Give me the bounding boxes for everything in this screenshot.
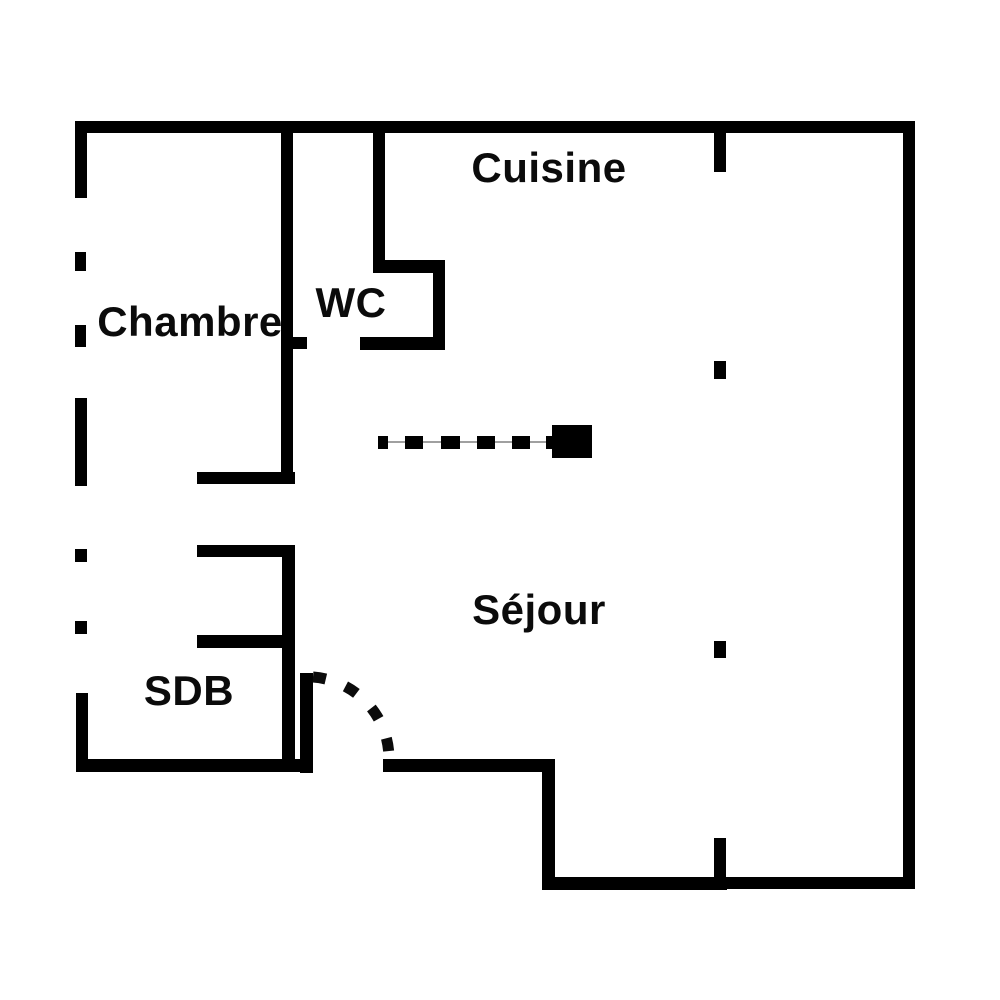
wall-step-horizontal bbox=[383, 759, 555, 772]
wall-wc-right-upper bbox=[373, 130, 385, 273]
wall-chambre-divider bbox=[281, 130, 293, 473]
room-label-cuisine: Cuisine bbox=[471, 144, 626, 191]
room-label-chambre: Chambre bbox=[97, 298, 283, 345]
indicator-block bbox=[552, 425, 592, 458]
wall-right bbox=[903, 121, 915, 889]
floor-plan: Cuisine Chambre WC Séjour SDB bbox=[0, 0, 1000, 1000]
room-label-sejour: Séjour bbox=[472, 586, 606, 633]
opening-dash bbox=[714, 641, 726, 658]
wall-step-vertical bbox=[542, 760, 555, 890]
floor-plan-drawing: Cuisine Chambre WC Séjour SDB bbox=[0, 0, 1000, 1000]
door-swing-arc bbox=[313, 677, 389, 759]
window-dash bbox=[75, 252, 86, 271]
wall-chambre-bottom bbox=[197, 472, 295, 484]
wall-bottom-right bbox=[720, 877, 915, 889]
indicator-dash bbox=[378, 436, 388, 449]
entrance-indicator bbox=[378, 425, 592, 458]
indicator-dash bbox=[477, 436, 495, 449]
wall-sdb-top bbox=[197, 545, 293, 557]
wall-top bbox=[75, 121, 913, 133]
indicator-dash bbox=[512, 436, 530, 449]
wall-sdb-middle bbox=[197, 635, 283, 648]
wall-stub-bottom bbox=[714, 838, 726, 889]
opening-dash bbox=[714, 361, 726, 379]
wall-wc-door-jamb bbox=[293, 337, 307, 349]
wall-sdb-right bbox=[282, 545, 295, 772]
room-label-wc: WC bbox=[316, 279, 387, 326]
indicator-dash bbox=[405, 436, 423, 449]
wall-bottom-middle bbox=[542, 877, 727, 890]
wall-left-upper bbox=[75, 121, 87, 198]
room-label-sdb: SDB bbox=[144, 667, 234, 714]
wall-wc-right-lower bbox=[433, 260, 445, 350]
wall-stub-top bbox=[714, 130, 726, 172]
sdb-walls bbox=[197, 545, 313, 773]
wall-door-stub bbox=[300, 673, 313, 773]
wall-left-lower bbox=[76, 693, 88, 772]
wall-wc-bottom bbox=[360, 337, 445, 350]
window-dash bbox=[75, 549, 87, 562]
wall-bottom-left bbox=[76, 759, 313, 772]
wall-left-middle bbox=[75, 398, 87, 486]
window-dash bbox=[75, 325, 86, 347]
window-dash bbox=[75, 621, 87, 634]
indicator-dash bbox=[441, 436, 460, 449]
exterior-walls bbox=[75, 121, 915, 890]
right-opening-markers bbox=[714, 130, 726, 889]
